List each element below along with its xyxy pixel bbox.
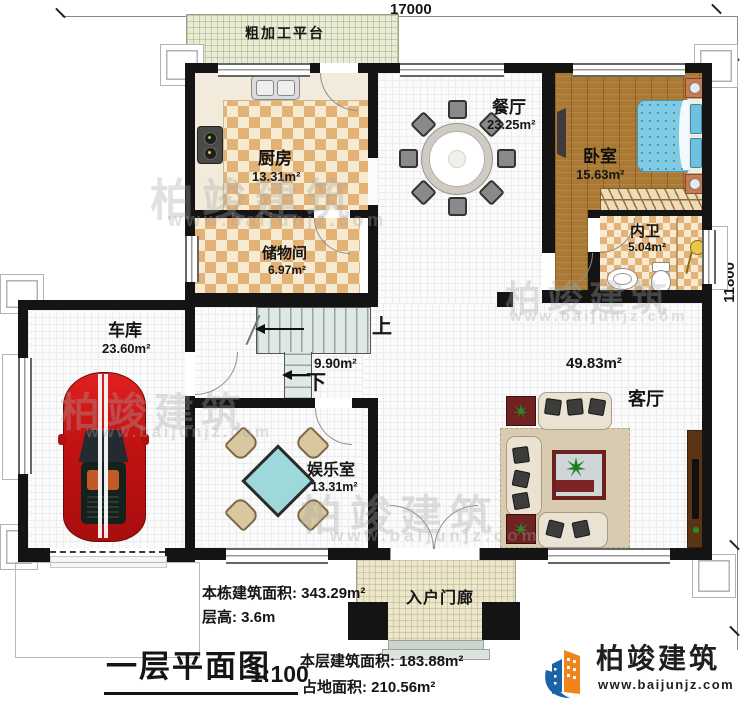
burner-flame xyxy=(208,136,211,139)
sofa-pillow xyxy=(512,446,530,464)
sofa-pillow xyxy=(512,492,531,511)
living-label: 客厅 xyxy=(628,390,664,410)
wall-exterior-east xyxy=(702,63,712,560)
stairs-down-arrowhead xyxy=(282,370,292,380)
wall-bedroom-west xyxy=(542,63,555,253)
wall-kitchen-east xyxy=(368,63,378,158)
bedroom-area: 15.63m² xyxy=(576,168,624,182)
bedroom-tv xyxy=(557,108,566,158)
entertainment-window xyxy=(226,548,328,564)
floor-area: 本层建筑面积: 183.88m² xyxy=(300,654,463,671)
sofa-pillow xyxy=(572,520,591,539)
entertainment-label: 娱乐室 xyxy=(307,462,355,480)
dimension-tick xyxy=(711,4,722,15)
dimension-tick xyxy=(729,626,740,637)
wall-garage-south-pier xyxy=(18,548,50,562)
logo-building-blue xyxy=(552,659,562,694)
floor-height: 层高: 3.6m xyxy=(202,610,275,627)
logo-building-orange xyxy=(564,650,580,694)
dining-chair xyxy=(448,100,467,119)
sink-basin xyxy=(256,80,274,96)
dining-chair xyxy=(497,149,516,168)
bed xyxy=(637,98,703,172)
porch-column xyxy=(482,602,520,640)
brand-name: 柏竣建筑 xyxy=(596,644,720,675)
storage-label: 储物间 xyxy=(262,246,307,263)
sink-basin xyxy=(277,80,295,96)
burner-flame xyxy=(208,151,211,154)
bedroom-label: 卧室 xyxy=(583,148,617,167)
sofa-pillow xyxy=(544,398,562,416)
sofa-pillow xyxy=(545,519,564,538)
wall-exterior-west xyxy=(185,63,195,560)
plant-icon xyxy=(513,403,529,419)
dimension-tick xyxy=(55,8,66,19)
building-total-area: 本栋建筑面积: 343.29m² xyxy=(202,586,365,603)
sofa-bottom xyxy=(538,512,608,548)
dining-window xyxy=(400,63,504,77)
dining-table-center xyxy=(448,150,466,168)
bed-pillow xyxy=(690,104,702,134)
lamp xyxy=(689,82,701,94)
bedroom-window xyxy=(573,63,685,77)
plant-icon xyxy=(565,456,587,478)
tv-plant xyxy=(693,527,699,533)
plan-title-underline xyxy=(104,692,298,695)
ensuite-area: 5.04m² xyxy=(628,241,666,254)
wall-garage-south-pier xyxy=(165,548,195,562)
driveway-outline xyxy=(15,562,200,658)
dining-table xyxy=(421,123,493,195)
dimension-tick xyxy=(729,540,740,551)
footprint-area: 占地面积: 210.56m² xyxy=(302,680,435,697)
watermark-url: www.baijunjz.com xyxy=(510,308,687,325)
stairs-up-arrow-line xyxy=(264,328,304,330)
dining-label: 餐厅 xyxy=(492,99,526,118)
sofa-pillow xyxy=(566,398,584,416)
lamp xyxy=(689,178,701,190)
stairs-down-label: 下 xyxy=(306,372,326,394)
wall-ensuite-north xyxy=(588,210,712,216)
stairs-upper-flight xyxy=(256,307,371,354)
dining-chair xyxy=(399,149,418,168)
ensuite-label: 内卫 xyxy=(630,224,660,241)
brand-logo-icon xyxy=(540,642,592,700)
living-area: 49.83m² xyxy=(566,356,622,373)
kitchen-dining-opening xyxy=(368,158,378,205)
porch-column xyxy=(348,602,388,640)
stairs-area: 9.90m² xyxy=(314,357,357,372)
coffee-table xyxy=(552,450,606,500)
dining-chair xyxy=(448,197,467,216)
bed-pillow xyxy=(690,138,702,168)
brand-logo: 柏竣建筑 www.baijunjz.com xyxy=(540,640,740,700)
entrance-door-sill xyxy=(390,548,480,560)
living-window xyxy=(548,548,670,564)
watermark-url: www.baijunjz.com xyxy=(86,424,272,442)
garage-label: 车库 xyxy=(108,322,142,341)
watermark-url: www.baijunjz.com xyxy=(168,210,387,231)
sofa-pillow xyxy=(588,398,607,417)
stairs-up-arrowhead xyxy=(255,324,265,334)
ensuite-door-gap xyxy=(588,218,600,252)
porch-label: 入户门廊 xyxy=(406,590,474,608)
storage-area: 6.97m² xyxy=(268,264,306,277)
sofa-pillow xyxy=(512,470,531,489)
brand-website: www.baijunjz.com xyxy=(598,678,734,692)
sofa-left xyxy=(506,436,542,516)
side-table xyxy=(506,396,536,426)
garage-area: 23.60m² xyxy=(102,342,150,356)
kitchen-sink xyxy=(251,75,300,100)
tv xyxy=(692,459,699,519)
floor-plan-canvas: 17000 11800 1800 粗加工平台 xyxy=(0,0,750,706)
kitchen-door-gap xyxy=(320,63,358,73)
dining-area: 23.25m² xyxy=(487,118,535,132)
plan-title: 一层平面图 xyxy=(106,650,271,684)
wall-storage-south xyxy=(185,293,378,307)
bath-divider xyxy=(676,218,678,290)
dimension-line-right xyxy=(737,16,738,650)
car-engine-grid xyxy=(87,496,119,518)
entertainment-door-gap xyxy=(315,398,352,408)
garage-door-dashed xyxy=(50,551,165,553)
kitchen-window xyxy=(218,63,310,77)
garage-window xyxy=(18,358,32,474)
bed-sheet-fold xyxy=(679,100,689,170)
stove xyxy=(197,126,223,164)
corner-pilaster xyxy=(692,554,736,598)
wall-garage-north xyxy=(18,300,195,310)
stairs-up-label: 上 xyxy=(372,316,392,338)
ensuite-window xyxy=(702,230,716,284)
watermark-url: www.baijunjz.com xyxy=(330,526,541,546)
platform-label: 粗加工平台 xyxy=(245,26,325,41)
storage-window xyxy=(185,236,199,282)
sofa-top xyxy=(538,392,612,430)
coffee-table-shelf xyxy=(556,480,594,492)
